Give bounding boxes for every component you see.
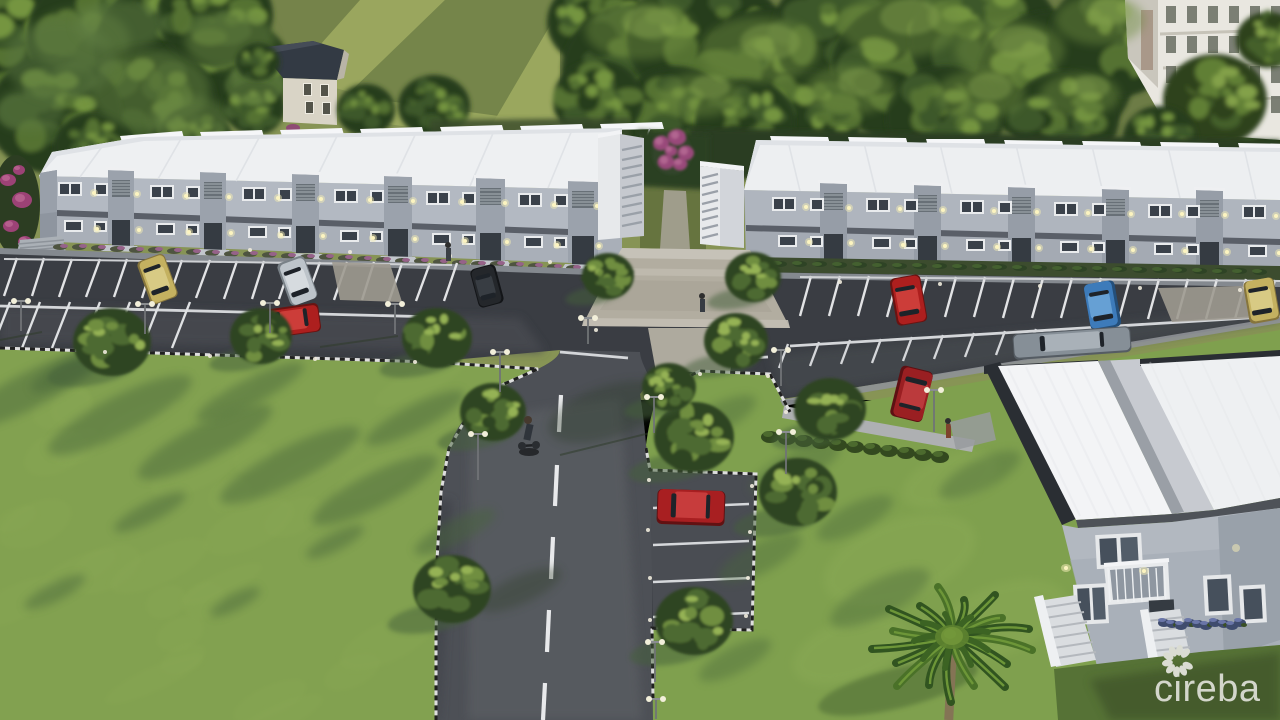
svg-text:cireba: cireba [1154, 668, 1261, 710]
